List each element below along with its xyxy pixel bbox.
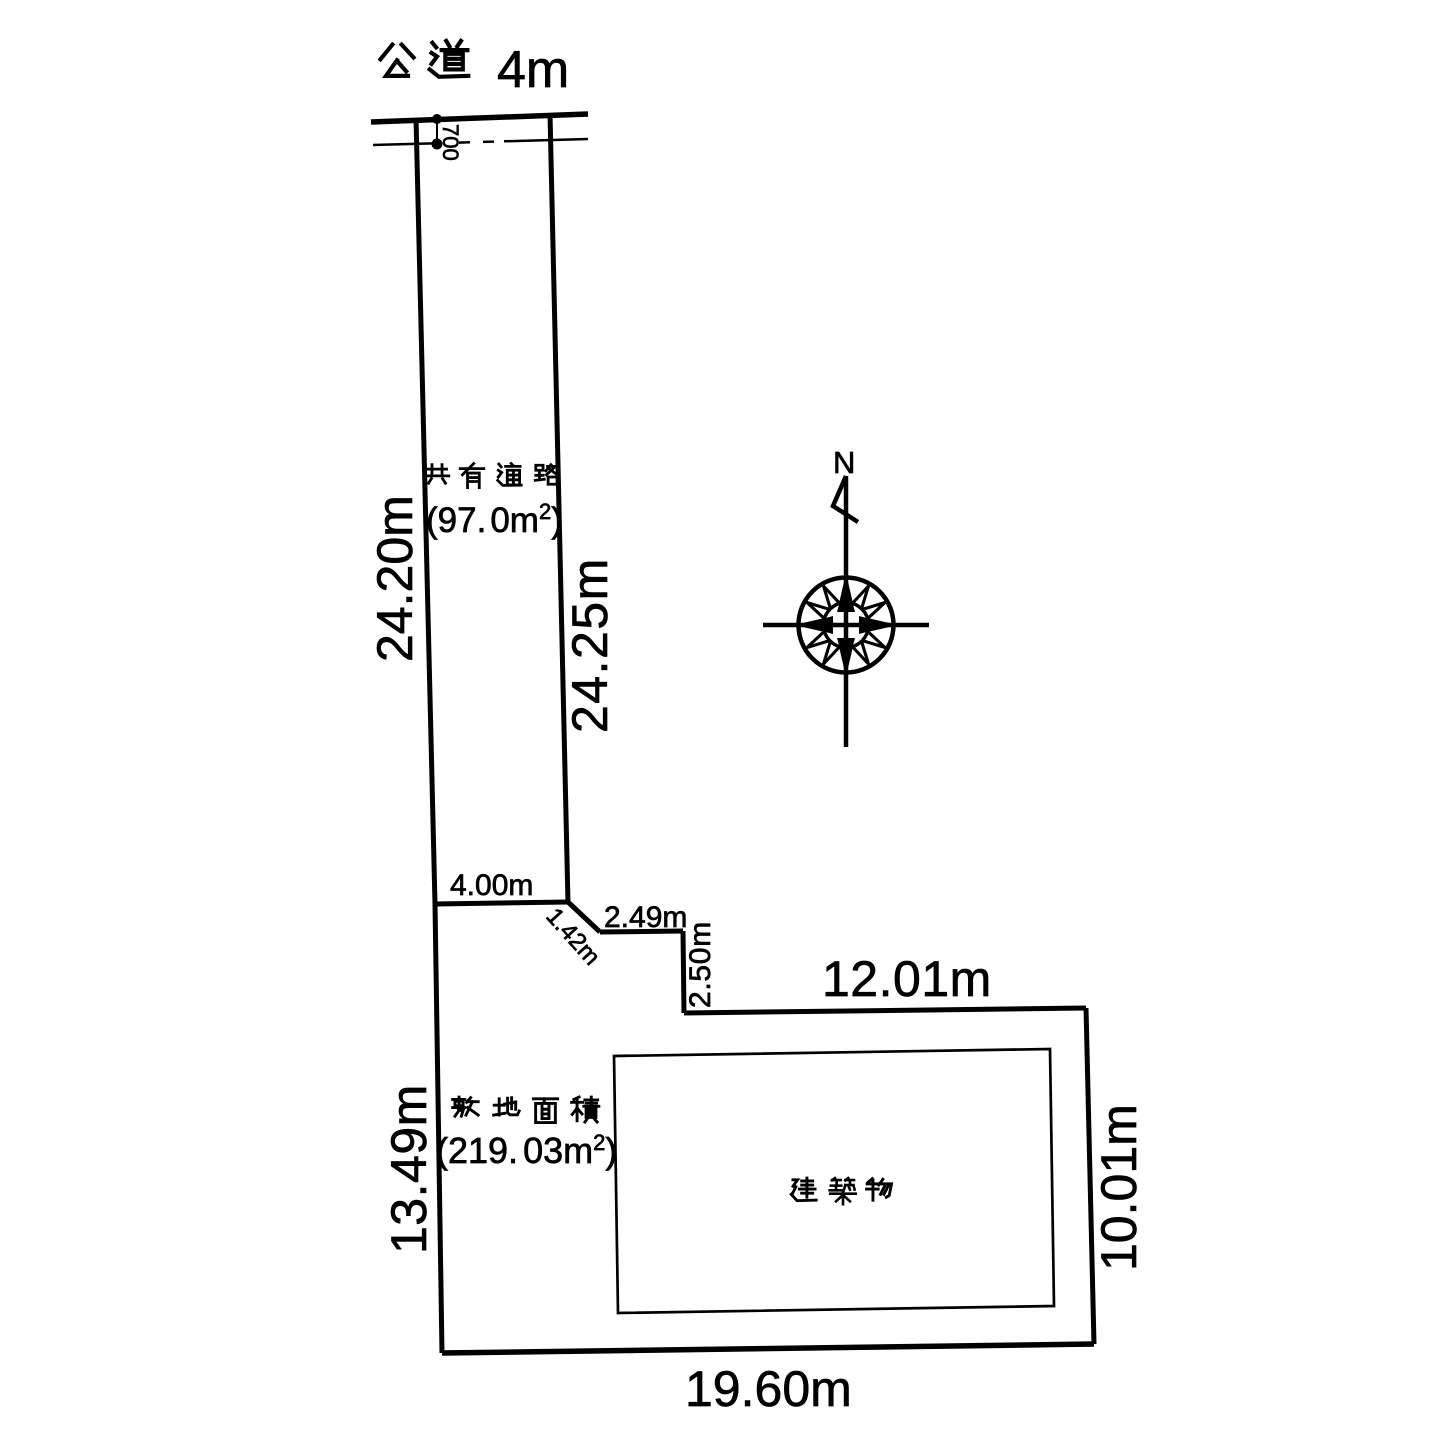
- svg-text:12.01m: 12.01m: [822, 951, 992, 1007]
- svg-text:13.49m: 13.49m: [381, 1084, 437, 1254]
- svg-text:4.00m: 4.00m: [450, 869, 533, 902]
- svg-text:19.60m: 19.60m: [685, 1361, 852, 1417]
- svg-text:24.20m: 24.20m: [367, 495, 423, 662]
- svg-text:700: 700: [438, 124, 463, 161]
- svg-text:4m: 4m: [497, 41, 569, 99]
- svg-text:10.01m: 10.01m: [1091, 1104, 1147, 1271]
- svg-text:N: N: [833, 445, 855, 480]
- svg-text:2.50m: 2.50m: [684, 921, 717, 1008]
- svg-text:24.25m: 24.25m: [562, 557, 618, 733]
- svg-text:(219.03m2): (219.03m2): [436, 1130, 617, 1171]
- svg-text:2.49m: 2.49m: [604, 901, 687, 934]
